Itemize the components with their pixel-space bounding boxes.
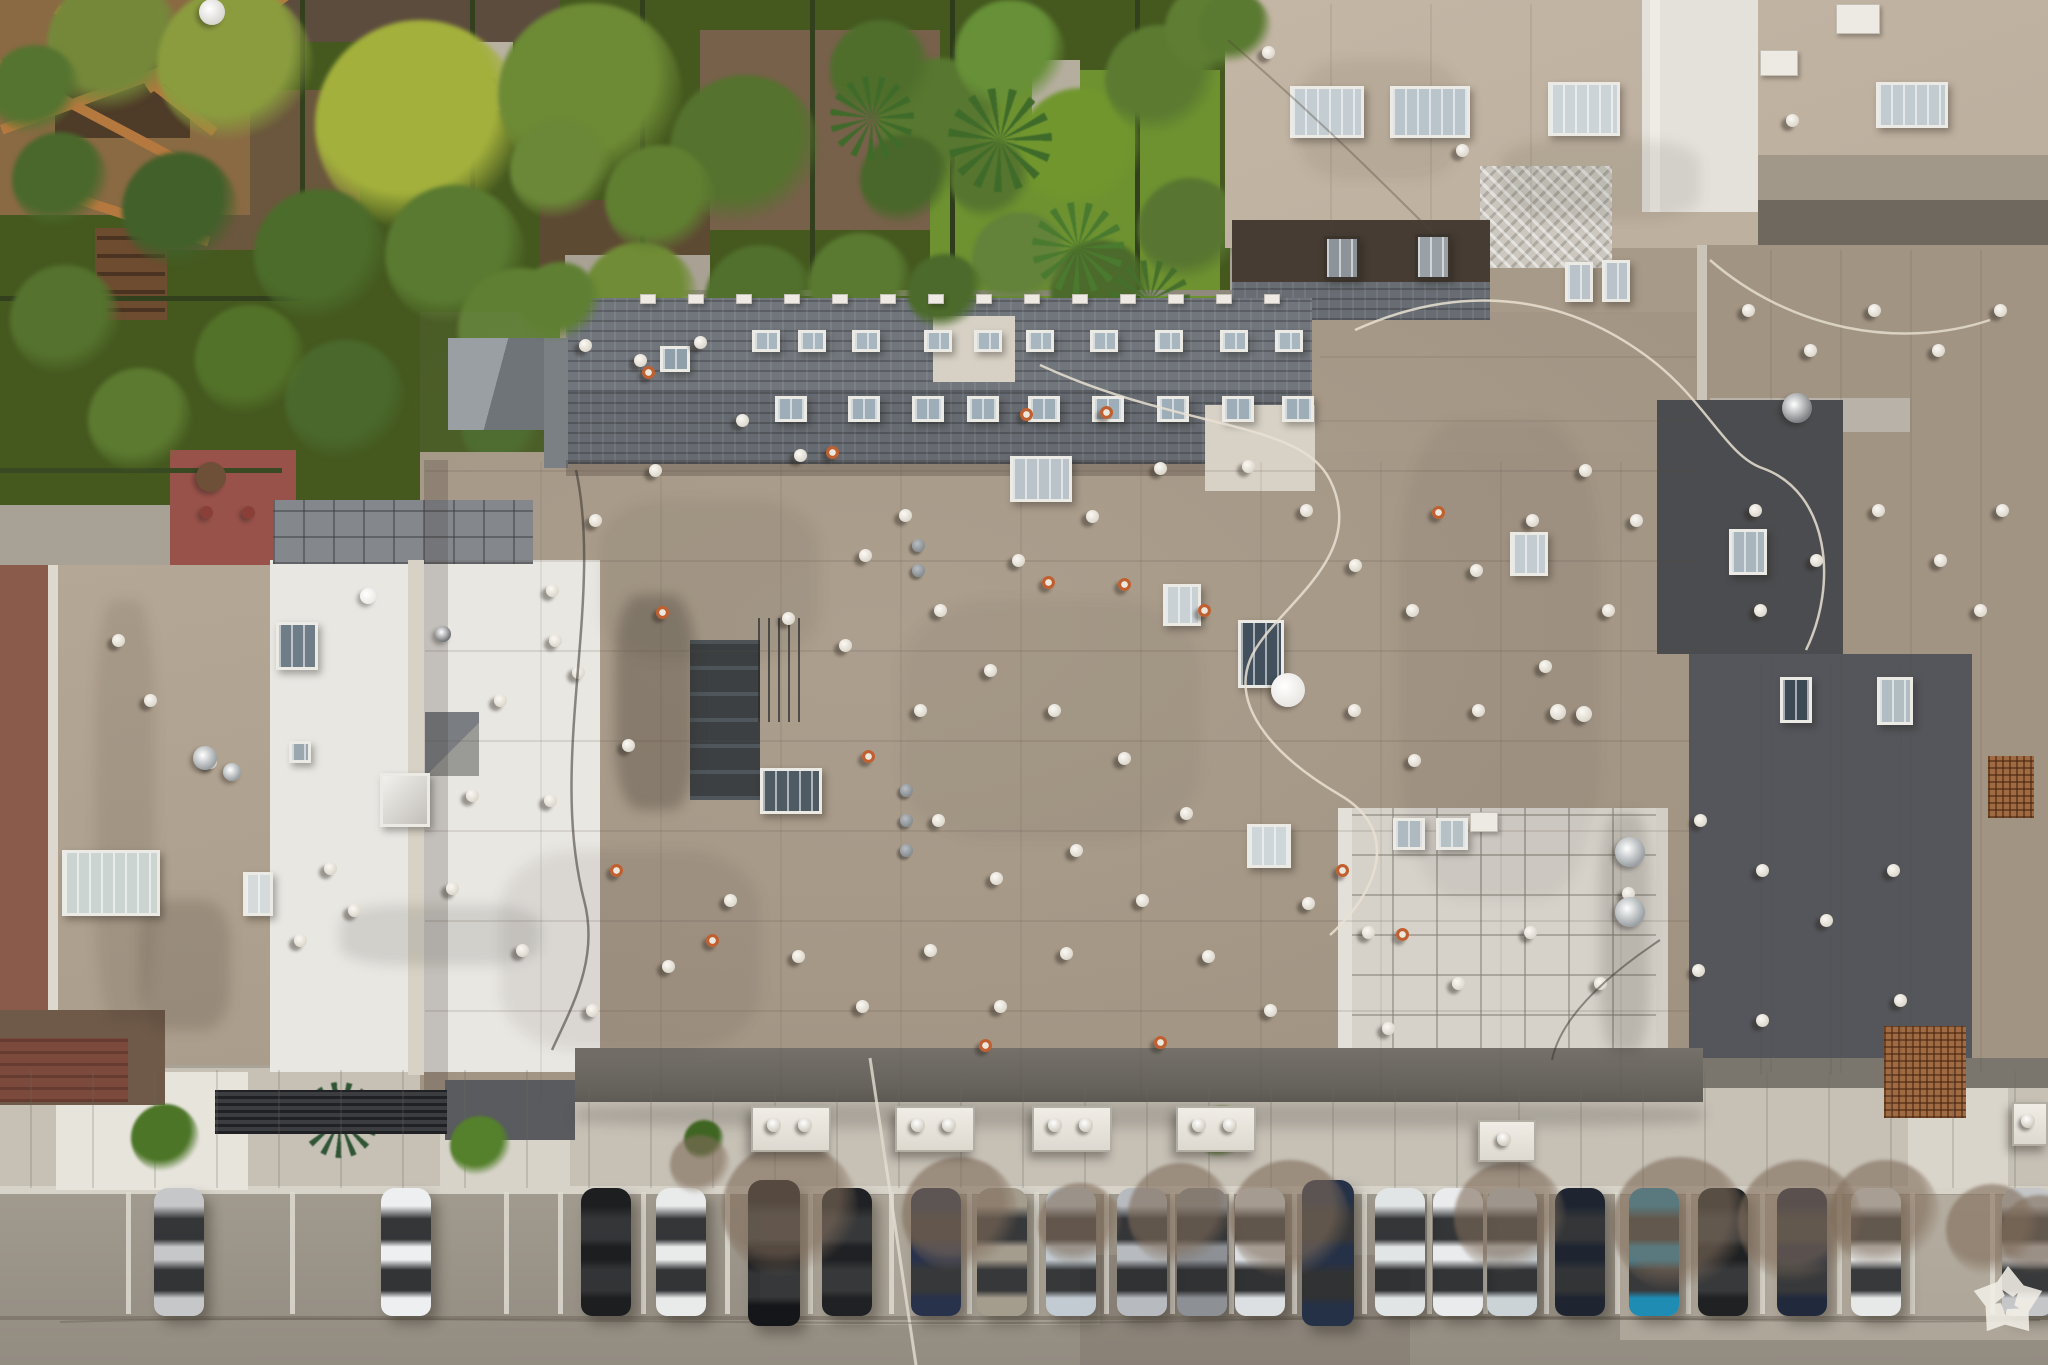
skylight bbox=[1155, 330, 1183, 352]
parked-car bbox=[1375, 1188, 1425, 1316]
roof-vent-white bbox=[1154, 462, 1167, 475]
garden-prop bbox=[242, 506, 255, 519]
roof-hatch bbox=[640, 294, 656, 304]
roof-seam bbox=[1140, 462, 1142, 1100]
roof-vent-white bbox=[736, 414, 749, 427]
sidewalk-bush bbox=[450, 1116, 510, 1176]
roof-vent-white bbox=[1382, 1022, 1395, 1035]
roof-vent-white bbox=[1452, 977, 1465, 990]
roof-vent-white bbox=[144, 694, 157, 707]
satellite-dish bbox=[199, 0, 225, 25]
roof-seam bbox=[1840, 250, 1842, 1073]
red-roof-edge bbox=[48, 565, 58, 1010]
sidewalk-joint bbox=[1580, 1070, 1582, 1188]
roof-seam bbox=[1260, 462, 1262, 1100]
roof-vent-white bbox=[1756, 1014, 1769, 1027]
roof-hatch bbox=[688, 294, 704, 304]
roof-vent-white bbox=[914, 704, 927, 717]
roof-vent-white bbox=[1348, 704, 1361, 717]
roof-vent-white bbox=[446, 882, 459, 895]
roof-vent-white bbox=[1086, 510, 1099, 523]
satellite-dish bbox=[1271, 673, 1305, 707]
roof-hatch bbox=[1120, 294, 1136, 304]
skylight bbox=[660, 346, 690, 372]
roof-vent-white bbox=[1349, 559, 1362, 572]
shingle-shadow-on-main bbox=[566, 460, 1312, 476]
satellite-dish bbox=[435, 626, 451, 642]
roof-vent-white bbox=[1872, 504, 1885, 517]
awning-lamp-icon bbox=[1192, 1118, 1206, 1132]
parking-stall-line bbox=[641, 1192, 646, 1314]
roof-vent-white bbox=[924, 944, 937, 957]
awning-lamp-icon bbox=[2021, 1114, 2035, 1128]
satellite-dish bbox=[1615, 897, 1645, 927]
roof-vent-orange bbox=[642, 366, 655, 379]
roof-vent-orange bbox=[1396, 928, 1409, 941]
roof-vent-white bbox=[662, 960, 675, 973]
skylight bbox=[1247, 824, 1291, 868]
roof-hatch bbox=[928, 294, 944, 304]
wood-beam bbox=[97, 272, 165, 276]
skylight bbox=[924, 330, 952, 352]
tree-canopy bbox=[195, 305, 305, 415]
roof-vent-white bbox=[984, 664, 997, 677]
roof-hatch bbox=[880, 294, 896, 304]
brown-penthouse bbox=[1232, 220, 1490, 282]
roof-vent-white bbox=[1749, 504, 1762, 517]
roof-vent-gray bbox=[900, 814, 913, 827]
roof-seam bbox=[1620, 462, 1622, 1100]
sidewalk-joint bbox=[1022, 1070, 1024, 1188]
roof-vent-white bbox=[1804, 344, 1817, 357]
skylight bbox=[62, 850, 160, 916]
skylight bbox=[912, 396, 944, 422]
tree-canopy bbox=[122, 152, 238, 268]
roof-vent-white bbox=[1300, 504, 1313, 517]
roof-vent-white bbox=[348, 904, 361, 917]
skylight bbox=[1290, 86, 1364, 138]
penthouse bbox=[690, 640, 760, 800]
bare-street-tree bbox=[722, 1142, 858, 1278]
roof-vent-white bbox=[1894, 994, 1907, 1007]
skylight bbox=[1028, 396, 1060, 422]
roof-vent-white bbox=[1408, 754, 1421, 767]
parking-stall-line bbox=[126, 1192, 131, 1314]
parked-car bbox=[154, 1188, 204, 1316]
bare-street-tree bbox=[1612, 1157, 1748, 1293]
awning-lamp-icon bbox=[798, 1118, 812, 1132]
rust-grate-2 bbox=[1988, 756, 2034, 818]
roof-vent-white bbox=[1994, 304, 2007, 317]
roof-vent-white bbox=[579, 339, 592, 352]
sidewalk-bush bbox=[131, 1104, 199, 1172]
cast-shadow bbox=[900, 600, 1200, 840]
entrance-awning bbox=[2012, 1102, 2048, 1146]
bare-street-tree bbox=[1038, 1183, 1122, 1267]
roof-vent-orange bbox=[862, 750, 875, 763]
garage-door bbox=[0, 1038, 128, 1102]
sidewalk-joint bbox=[1456, 1070, 1458, 1188]
roof-seam bbox=[1830, 660, 1832, 1075]
shingle-gable-left bbox=[448, 338, 544, 430]
aerial-photo-scene bbox=[0, 0, 2048, 1365]
cast-shadow bbox=[340, 905, 540, 965]
garden-prop bbox=[196, 462, 226, 492]
skylight bbox=[1510, 532, 1548, 576]
roof-seam bbox=[425, 740, 1700, 742]
skylight bbox=[1780, 677, 1812, 723]
roof-hatch bbox=[1760, 50, 1798, 76]
roof-seam bbox=[1380, 462, 1382, 1100]
roof-vent-white bbox=[934, 604, 947, 617]
cast-shadow bbox=[140, 900, 230, 1030]
shingle-wall-strip bbox=[544, 338, 568, 468]
roof-vent-orange bbox=[1118, 578, 1131, 591]
skylight bbox=[752, 330, 780, 352]
roof-seam bbox=[660, 462, 662, 1100]
sidewalk-joint bbox=[588, 1070, 590, 1188]
roof-seam bbox=[1530, 4, 1532, 244]
skylight bbox=[1220, 330, 1248, 352]
roof-hatch bbox=[1024, 294, 1040, 304]
roof-hatch bbox=[1168, 294, 1184, 304]
roof-vent-orange bbox=[610, 864, 623, 877]
satellite-dish bbox=[1615, 837, 1645, 867]
tree-canopy bbox=[254, 189, 386, 321]
roof-vent-orange bbox=[1154, 1036, 1167, 1049]
skylight bbox=[852, 330, 880, 352]
roof-vent-white bbox=[1786, 114, 1799, 127]
skylight bbox=[1729, 529, 1767, 575]
sidewalk-joint bbox=[1394, 1070, 1396, 1188]
roof-vent-white bbox=[1579, 464, 1592, 477]
skylight bbox=[1026, 330, 1054, 352]
roof-vent-white bbox=[634, 354, 647, 367]
roof-vent-white bbox=[1868, 304, 1881, 317]
roof-vent-white bbox=[649, 464, 662, 477]
sidewalk-joint bbox=[30, 1070, 32, 1188]
skylight bbox=[243, 872, 273, 916]
roof-vent-white bbox=[859, 549, 872, 562]
roof-seam bbox=[1980, 250, 1982, 1073]
satellite-dish bbox=[193, 746, 217, 770]
skylight bbox=[1157, 396, 1189, 422]
skylight bbox=[1222, 396, 1254, 422]
awning-lamp-icon bbox=[1048, 1118, 1062, 1132]
roof-vent-white bbox=[694, 336, 707, 349]
parking-stall-line bbox=[1362, 1192, 1367, 1314]
awning-lamp-icon bbox=[942, 1118, 956, 1132]
satellite-dish bbox=[1782, 393, 1812, 423]
roof-seam bbox=[425, 560, 1700, 562]
roof-vent-gray bbox=[900, 784, 913, 797]
roof-vent-white bbox=[839, 639, 852, 652]
skylight bbox=[1393, 818, 1425, 850]
satellite-dish bbox=[223, 763, 241, 781]
roof-vent-orange bbox=[1042, 576, 1055, 589]
sidewalk-joint bbox=[1146, 1070, 1148, 1188]
skylight bbox=[1010, 456, 1072, 502]
roof-seam bbox=[540, 462, 542, 1100]
roof-vent-gray bbox=[900, 844, 913, 857]
roof-vent-white bbox=[990, 872, 1003, 885]
roof-vent-white bbox=[899, 509, 912, 522]
awning-lamp-icon bbox=[767, 1118, 781, 1132]
roof-vent-white bbox=[1472, 704, 1485, 717]
roof-vent-orange bbox=[706, 934, 719, 947]
roof-vent-white bbox=[782, 612, 795, 625]
sidewalk-joint bbox=[1332, 1070, 1334, 1188]
white-roof-deck bbox=[273, 500, 533, 564]
palm-tree bbox=[1032, 202, 1124, 294]
tree-canopy bbox=[88, 368, 192, 472]
skylight bbox=[760, 768, 822, 814]
roof-vent-orange bbox=[979, 1039, 992, 1052]
entrance-awning bbox=[895, 1106, 975, 1152]
roof-vent-white bbox=[1406, 604, 1419, 617]
roof-vent-white bbox=[549, 634, 562, 647]
entrance-awning bbox=[1032, 1106, 1112, 1152]
roof-vent-white bbox=[1262, 46, 1275, 59]
palm-tree bbox=[948, 88, 1052, 192]
skylight bbox=[1548, 82, 1620, 136]
roof-vent-white bbox=[494, 694, 507, 707]
tr-dark-edge bbox=[1758, 200, 2048, 248]
sidewalk-joint bbox=[92, 1070, 94, 1188]
roof-vent-white bbox=[466, 789, 479, 802]
canopy-band bbox=[575, 1048, 1703, 1102]
roof-vent-white bbox=[794, 449, 807, 462]
skylight bbox=[1282, 396, 1314, 422]
roof-vent-white bbox=[1060, 947, 1073, 960]
roof-vent-white bbox=[1630, 514, 1643, 527]
street-seam bbox=[0, 1316, 2048, 1320]
skylight bbox=[1324, 236, 1360, 280]
roof-seam bbox=[425, 830, 1700, 832]
roof-vent-orange bbox=[1100, 406, 1113, 419]
roof-vent-white bbox=[1694, 814, 1707, 827]
skylight bbox=[1602, 260, 1630, 302]
skylight bbox=[1415, 234, 1451, 280]
roof-vent-white bbox=[1550, 704, 1566, 720]
awning-lamp-icon bbox=[1497, 1132, 1511, 1146]
sidewalk-joint bbox=[1952, 1070, 1954, 1188]
roof-vent-white bbox=[1362, 926, 1375, 939]
skylight bbox=[1390, 86, 1470, 138]
roof-vent-white bbox=[544, 794, 557, 807]
roof-vent-orange bbox=[656, 606, 669, 619]
palm-tree bbox=[830, 76, 914, 160]
entrance-awning bbox=[751, 1106, 831, 1152]
roof-seam bbox=[425, 1010, 1700, 1012]
roof-seam bbox=[900, 462, 902, 1100]
roof-vent-white bbox=[572, 666, 585, 679]
awning-lamp-icon bbox=[1223, 1118, 1237, 1132]
roof-vent-white bbox=[112, 634, 125, 647]
roof-vent-white bbox=[1456, 144, 1469, 157]
bare-street-tree bbox=[902, 1157, 1018, 1273]
roof-hatch bbox=[784, 294, 800, 304]
roof-vent-white bbox=[1932, 344, 1945, 357]
roof-seam bbox=[1320, 356, 1696, 358]
bare-street-tree bbox=[1454, 1162, 1566, 1274]
tree-canopy bbox=[605, 145, 715, 255]
roof-hatch bbox=[1216, 294, 1232, 304]
skylight bbox=[289, 741, 311, 763]
roof-vent-white bbox=[1242, 460, 1255, 473]
roof-vent-white bbox=[1118, 752, 1131, 765]
skylight bbox=[1876, 82, 1948, 128]
roof-vent-white bbox=[1539, 660, 1552, 673]
skylight bbox=[775, 396, 807, 422]
roof-vent-white bbox=[1012, 554, 1025, 567]
roof-vent-gray bbox=[912, 564, 925, 577]
skylight bbox=[1565, 262, 1593, 302]
bare-street-tree bbox=[1230, 1160, 1350, 1280]
charcoal-upper bbox=[1657, 400, 1843, 654]
roof-vent-white bbox=[1996, 504, 2009, 517]
roof-vent-white bbox=[589, 514, 602, 527]
bare-street-tree bbox=[1128, 1163, 1232, 1267]
roof-vent-white bbox=[1302, 897, 1315, 910]
roof-vent-white bbox=[324, 862, 337, 875]
skylight bbox=[276, 622, 318, 670]
roof-hatch bbox=[1072, 294, 1088, 304]
tree-canopy-overhanging bbox=[907, 254, 983, 330]
roof-hatch bbox=[832, 294, 848, 304]
roof-vent-orange bbox=[1198, 604, 1211, 617]
roof-vent-orange bbox=[1020, 408, 1033, 421]
tree-canopy bbox=[510, 120, 610, 220]
satellite-dish bbox=[360, 588, 376, 604]
roof-vent-white bbox=[1202, 950, 1215, 963]
roof-vent-white bbox=[1887, 864, 1900, 877]
paver-parapet-right bbox=[1656, 808, 1668, 1056]
roof-seam bbox=[425, 920, 1700, 922]
roof-vent-white bbox=[1754, 604, 1767, 617]
roof-vent-white bbox=[622, 739, 635, 752]
roof-vent-white bbox=[1594, 977, 1607, 990]
canopy-right bbox=[1703, 1058, 2048, 1088]
roof-vent-white bbox=[1048, 704, 1061, 717]
sidewalk-joint bbox=[216, 1070, 218, 1188]
sidewalk-joint bbox=[340, 1070, 342, 1188]
garden-prop bbox=[200, 506, 213, 519]
entrance-awning bbox=[1176, 1106, 1256, 1152]
roof-vent-white bbox=[1264, 1004, 1277, 1017]
roof-vent-white bbox=[1820, 914, 1833, 927]
parking-stall-line bbox=[1427, 1192, 1432, 1314]
roof-vent-orange bbox=[1432, 506, 1445, 519]
roof-vent-white bbox=[586, 1004, 599, 1017]
roof-vent-white bbox=[1136, 894, 1149, 907]
roof-vent-white bbox=[1070, 844, 1083, 857]
roof-hatch bbox=[1470, 812, 1498, 832]
roof-seam bbox=[1770, 250, 1772, 1073]
parked-car bbox=[656, 1188, 706, 1316]
skylight bbox=[380, 773, 430, 827]
sidewalk-joint bbox=[278, 1070, 280, 1188]
tan-fill-2 bbox=[1480, 268, 1615, 313]
skylight bbox=[1275, 330, 1303, 352]
roof-seam bbox=[1500, 462, 1502, 1100]
entrance-awning bbox=[1478, 1120, 1536, 1162]
roof-hatch bbox=[976, 294, 992, 304]
bare-street-tree bbox=[1830, 1160, 1940, 1270]
skylight bbox=[1090, 330, 1118, 352]
skylight bbox=[1877, 677, 1913, 725]
roof-vent-white bbox=[516, 944, 529, 957]
roof-seam bbox=[1910, 250, 1912, 1073]
roof-vent-gray bbox=[912, 539, 925, 552]
roof-vent-white bbox=[1692, 964, 1705, 977]
roof-vent-white bbox=[1934, 554, 1947, 567]
skylight bbox=[974, 330, 1002, 352]
sidewalk-joint bbox=[402, 1070, 404, 1188]
tree-canopy-overhanging bbox=[520, 262, 600, 342]
roof-vent-white bbox=[1810, 554, 1823, 567]
roof-vent-white bbox=[1742, 304, 1755, 317]
roof-hatch bbox=[736, 294, 752, 304]
tree-canopy bbox=[12, 132, 108, 228]
awning-lamp-icon bbox=[911, 1118, 925, 1132]
roof-seam bbox=[1320, 420, 1696, 422]
roof-seam bbox=[425, 650, 1700, 652]
roof-vent-white bbox=[1974, 604, 1987, 617]
skylight bbox=[1163, 584, 1201, 626]
sidewalk-joint bbox=[650, 1070, 652, 1188]
roof-hatch bbox=[1836, 4, 1880, 34]
parked-car bbox=[381, 1188, 431, 1316]
parking-stall-line bbox=[889, 1192, 894, 1314]
roof-vent-white bbox=[994, 1000, 1007, 1013]
roof-vent-white bbox=[1526, 514, 1539, 527]
roof-vent-white bbox=[1180, 807, 1193, 820]
roof-vent-white bbox=[294, 934, 307, 947]
roof-vent-orange bbox=[826, 446, 839, 459]
roof-vent-white bbox=[1524, 926, 1537, 939]
roof-vent-white bbox=[1470, 564, 1483, 577]
entry-grate bbox=[215, 1090, 447, 1134]
red-roof-strip bbox=[0, 565, 50, 1010]
skylight bbox=[1436, 818, 1468, 850]
parking-stall-line bbox=[1034, 1192, 1039, 1314]
roof-vent-white bbox=[1576, 706, 1592, 722]
roof-vent-white bbox=[546, 584, 559, 597]
tree-canopy bbox=[10, 265, 120, 375]
roof-vent-white bbox=[932, 814, 945, 827]
parking-stall-line bbox=[504, 1192, 509, 1314]
roof-vent-white bbox=[1602, 604, 1615, 617]
skylight bbox=[798, 330, 826, 352]
parking-stall-line bbox=[558, 1192, 563, 1314]
parking-stall-line bbox=[290, 1192, 295, 1314]
roof-vent-orange bbox=[1336, 864, 1349, 877]
skylight bbox=[967, 396, 999, 422]
bare-street-tree bbox=[670, 1135, 730, 1195]
roof-vent-white bbox=[792, 950, 805, 963]
roof-vent-white bbox=[724, 894, 737, 907]
cast-shadow bbox=[600, 500, 820, 660]
roof-hatch bbox=[1264, 294, 1280, 304]
sidewalk-joint bbox=[526, 1070, 528, 1188]
parked-car bbox=[581, 1188, 631, 1316]
roof-vent-white bbox=[1756, 864, 1769, 877]
roof-vent-white bbox=[856, 1000, 869, 1013]
awning-lamp-icon bbox=[1079, 1118, 1093, 1132]
skylight bbox=[848, 396, 880, 422]
